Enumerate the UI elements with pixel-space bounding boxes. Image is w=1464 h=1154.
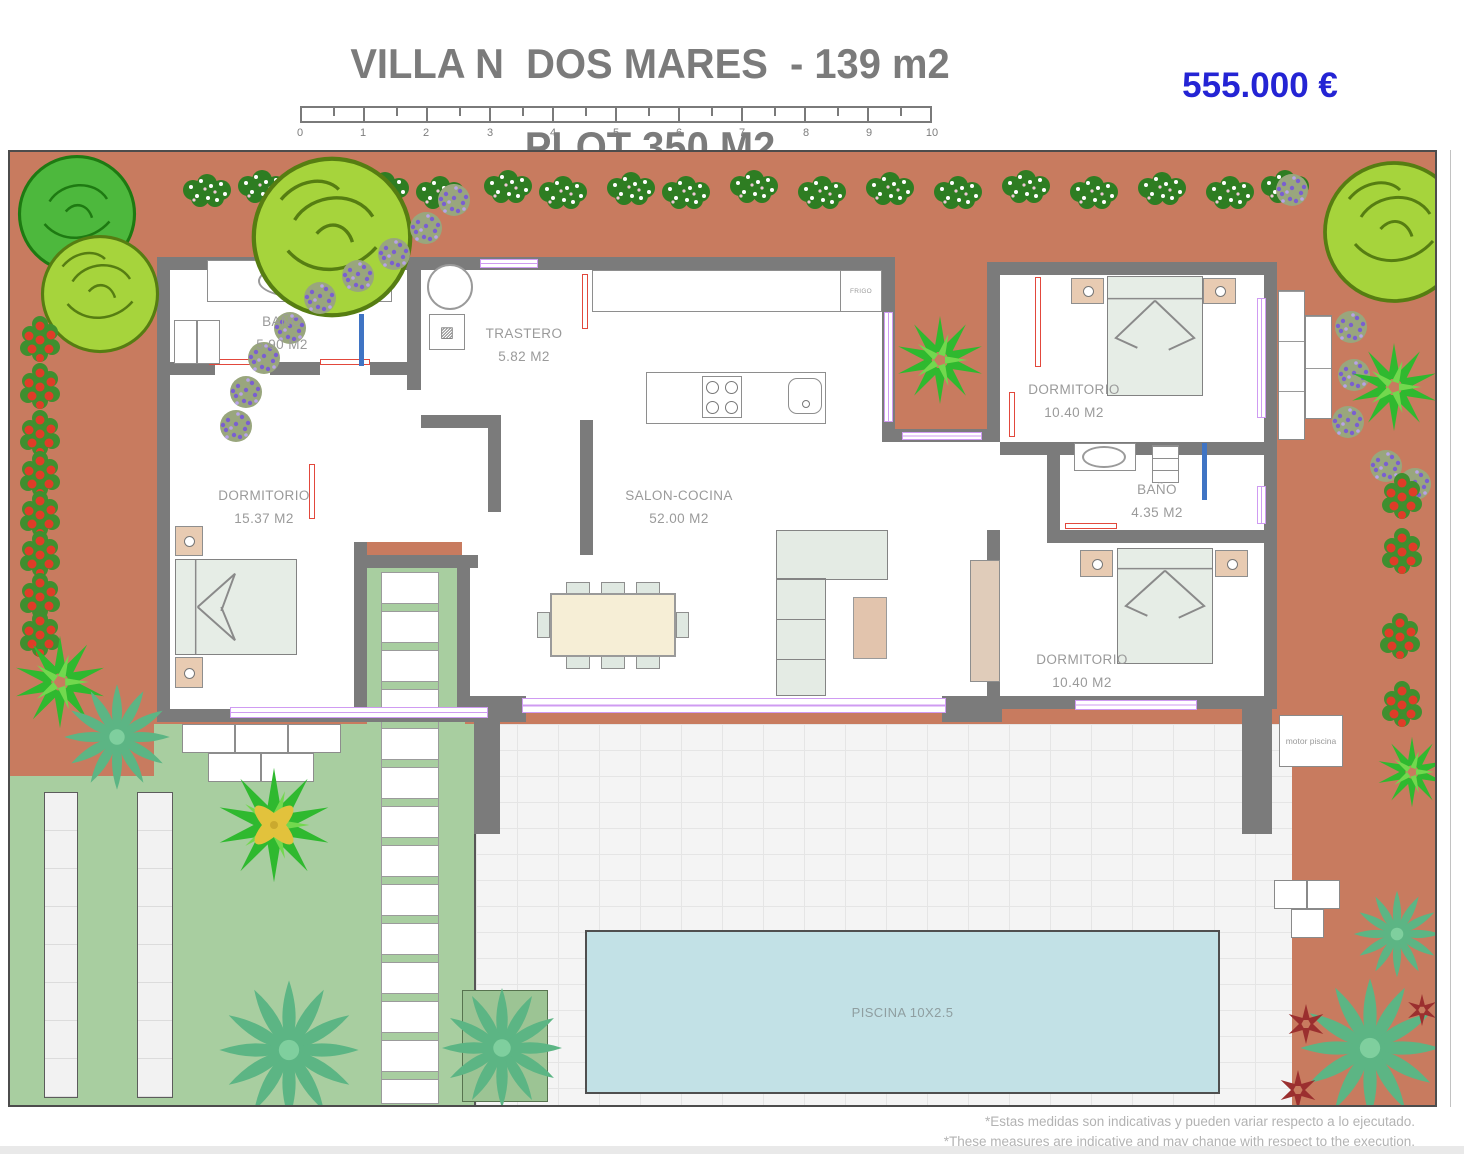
- room-area: 15.37 M2: [184, 507, 344, 530]
- red-bush-icon: [20, 611, 60, 657]
- red-bush-icon: [20, 573, 60, 619]
- scale-segment: [365, 108, 428, 121]
- scale-segment: [428, 108, 491, 121]
- entrance-step: [182, 724, 235, 753]
- red-bush-icon: [1382, 681, 1422, 727]
- scale-tick: 5: [613, 127, 619, 139]
- room-label-dormitorio3: DORMITORIO 10.40 M2: [1002, 648, 1162, 694]
- bottom-bar: [0, 1146, 1464, 1154]
- room-label-bano1: BAÑO 5.90 M2: [202, 310, 362, 356]
- scale-segment: [491, 108, 554, 121]
- flower-bush-icon: [1370, 450, 1402, 482]
- sofa-icon: [776, 530, 888, 580]
- wardrobe-icon: [970, 560, 1000, 682]
- room-area: 10.40 M2: [994, 401, 1154, 424]
- washer-icon: [427, 264, 473, 310]
- scale-tick: 3: [487, 127, 493, 139]
- chair-icon: [636, 655, 660, 669]
- flower-bush-icon: [1399, 468, 1431, 500]
- hedge-bush-icon: [183, 174, 231, 207]
- site-plan: PISCINA 10X2.5 motor piscina: [8, 150, 1437, 1107]
- rug-icon: [853, 597, 887, 659]
- red-bush-icon: [20, 316, 60, 362]
- room-label-salon: SALON-COCINA 52.00 M2: [599, 484, 759, 530]
- motor-piscina-box: motor piscina: [1279, 715, 1343, 767]
- scale-tick: 8: [803, 127, 809, 139]
- red-bush-icon: [20, 410, 60, 456]
- hedge-bush-icon: [1261, 170, 1309, 203]
- scale-tick: 9: [866, 127, 872, 139]
- driveway-strip: [137, 792, 173, 1098]
- nightstand-icon: [1071, 278, 1104, 304]
- faucet-dot: [802, 400, 810, 408]
- entrance-step: [208, 753, 261, 782]
- driveway-strip: [44, 792, 78, 1098]
- sink-icon: [1082, 446, 1126, 468]
- hedge-bush-icon: [539, 176, 587, 209]
- tree-icon: [20, 157, 135, 272]
- scale-tick: 1: [360, 127, 366, 139]
- wall: [987, 262, 1277, 275]
- terrace-corner: [10, 724, 154, 776]
- window: [902, 432, 982, 440]
- chair-icon: [601, 655, 625, 669]
- room-label-bano2: BAÑO 4.35 M2: [1077, 478, 1237, 524]
- stone-slab: [1274, 880, 1307, 909]
- room-area: 4.35 M2: [1077, 501, 1237, 524]
- footnote-es: *Estas medidas son indicativas y pueden …: [430, 1112, 1415, 1132]
- plot-outer-line: [1450, 150, 1451, 1107]
- palm-icon: [14, 636, 106, 728]
- red-bush-icon: [20, 491, 60, 537]
- scale-tick: 4: [550, 127, 556, 139]
- hedge-bush-icon: [1138, 172, 1186, 205]
- door-swing-icon: [582, 274, 588, 329]
- room-label-dormitorio1: DORMITORIO 15.37 M2: [184, 484, 344, 530]
- room-area: 5.82 M2: [444, 345, 604, 368]
- hedge-bush-icon: [607, 172, 655, 205]
- stone-slab-column: [1278, 290, 1305, 440]
- palm-icon: [1350, 343, 1437, 431]
- hedge-bush-icon: [1206, 176, 1254, 209]
- dining-table-icon: [550, 593, 676, 657]
- nightstand-icon: [1080, 550, 1113, 577]
- chair-icon: [566, 655, 590, 669]
- scale-tick: 7: [739, 127, 745, 139]
- room-name: BAÑO: [202, 310, 362, 333]
- wall: [1047, 530, 1277, 543]
- scale-segment: [806, 108, 869, 121]
- room-area: 10.40 M2: [1002, 671, 1162, 694]
- hedge-bush-icon: [361, 172, 409, 205]
- scale-tick: 2: [423, 127, 429, 139]
- hedge-bush-icon: [798, 176, 846, 209]
- stone-slab-column: [1305, 315, 1332, 419]
- window: [480, 259, 538, 268]
- hedge-bush-icon: [416, 176, 464, 209]
- garden-wall: [1242, 709, 1272, 834]
- flower-bush-icon: [410, 212, 442, 244]
- window: [1257, 486, 1266, 524]
- wall: [370, 362, 421, 375]
- garden-wall: [474, 722, 500, 834]
- sink-icon: [258, 264, 342, 298]
- tree-icon: [43, 237, 158, 352]
- wall: [270, 362, 320, 375]
- sofa-icon: [776, 578, 826, 696]
- red-bush-icon: [1382, 528, 1422, 574]
- hedge-bush-icon: [662, 176, 710, 209]
- room-label-dormitorio2: DORMITORIO 10.40 M2: [994, 378, 1154, 424]
- hedge-bush-icon: [238, 170, 286, 203]
- wall: [157, 257, 170, 722]
- price: 555.000 €: [1130, 66, 1390, 106]
- room-name: DORMITORIO: [994, 378, 1154, 401]
- hedge-bush-icon: [934, 176, 982, 209]
- flower-bush-icon: [1332, 406, 1364, 438]
- stove-icon: [702, 376, 742, 418]
- entrance-step: [288, 724, 341, 753]
- scale-bar: [300, 106, 932, 123]
- kitchen-counter: [592, 270, 842, 312]
- hedge-bush-icon: [1070, 176, 1118, 209]
- flower-bush-icon: [1338, 359, 1370, 391]
- stone-slab: [1291, 909, 1324, 938]
- palm-icon: [1354, 891, 1437, 977]
- garden-pocket: [895, 270, 987, 429]
- palm-icon: [1300, 978, 1437, 1107]
- hedge-bush-icon: [730, 170, 778, 203]
- flower-bush-icon: [438, 184, 470, 216]
- sink-icon: [788, 378, 822, 414]
- room-name: DORMITORIO: [184, 484, 344, 507]
- scale-segment: [302, 108, 365, 121]
- red-bush-icon: [20, 531, 60, 577]
- flower-bush-icon: [1276, 174, 1308, 206]
- stone-slab: [1307, 880, 1340, 909]
- hedge-bush-icon: [1002, 170, 1050, 203]
- scale-segment: [743, 108, 806, 121]
- window: [1257, 298, 1266, 418]
- room-name: BAÑO: [1077, 478, 1237, 501]
- red-plant-icon: [1407, 994, 1437, 1026]
- title-line-1: VILLA N DOS MARES - 139 m2: [261, 40, 1040, 88]
- fridge-label: FRIGO: [850, 288, 872, 295]
- red-bush-icon: [20, 451, 60, 497]
- flower-bush-icon: [1335, 311, 1367, 343]
- scale-numbers: 0 1 2 3 4 5 6 7 8 9 10: [300, 127, 936, 141]
- red-plant-icon: [1287, 1004, 1326, 1044]
- scale-segment: [617, 108, 680, 121]
- motor-piscina-label: motor piscina: [1286, 736, 1337, 746]
- room-name: TRASTERO: [444, 322, 604, 345]
- bed-icon: [175, 559, 297, 655]
- pool-label: PISCINA 10X2.5: [852, 1005, 954, 1020]
- bed-icon: [1117, 548, 1213, 664]
- hedge-bush-icon: [293, 176, 341, 209]
- nightstand-icon: [175, 526, 203, 556]
- pool: PISCINA 10X2.5: [585, 930, 1220, 1094]
- room-label-trastero: TRASTERO 5.82 M2: [444, 322, 604, 368]
- nightstand-icon: [1215, 550, 1248, 577]
- palm-icon: [1377, 737, 1437, 807]
- scale-tick: 10: [926, 127, 938, 139]
- fridge-box: FRIGO: [840, 270, 882, 312]
- scale-tick: 6: [676, 127, 682, 139]
- red-bush-icon: [1382, 473, 1422, 519]
- entrance-step: [261, 753, 314, 782]
- room-name: DORMITORIO: [1002, 648, 1162, 671]
- wall: [488, 415, 501, 512]
- scale-segment: [554, 108, 617, 121]
- scale-tick: 0: [297, 127, 303, 139]
- planter-square: [462, 990, 548, 1102]
- scale-segment: [869, 108, 930, 121]
- red-bush-icon: [1380, 613, 1420, 659]
- hedge-bush-icon: [484, 170, 532, 203]
- nightstand-icon: [1203, 278, 1236, 304]
- window: [884, 312, 893, 422]
- wall: [1047, 455, 1060, 530]
- chair-icon: [537, 612, 550, 638]
- window: [1075, 700, 1197, 710]
- room-area: 52.00 M2: [599, 507, 759, 530]
- chair-icon: [676, 612, 689, 638]
- nightstand-icon: [175, 657, 203, 688]
- scale-segment: [680, 108, 743, 121]
- hedge-bush-icon: [866, 172, 914, 205]
- tree-icon: [1325, 163, 1437, 301]
- wall: [1000, 442, 1277, 455]
- red-bush-icon: [20, 363, 60, 409]
- wall: [580, 420, 593, 555]
- room-name: SALON-COCINA: [599, 484, 759, 507]
- room-area: 5.90 M2: [202, 333, 362, 356]
- sliding-door: [522, 698, 946, 713]
- stepping-stone-path: [381, 572, 439, 1104]
- entrance-step: [235, 724, 288, 753]
- door-swing-icon: [1035, 277, 1041, 367]
- wall: [354, 542, 367, 722]
- window: [230, 707, 488, 718]
